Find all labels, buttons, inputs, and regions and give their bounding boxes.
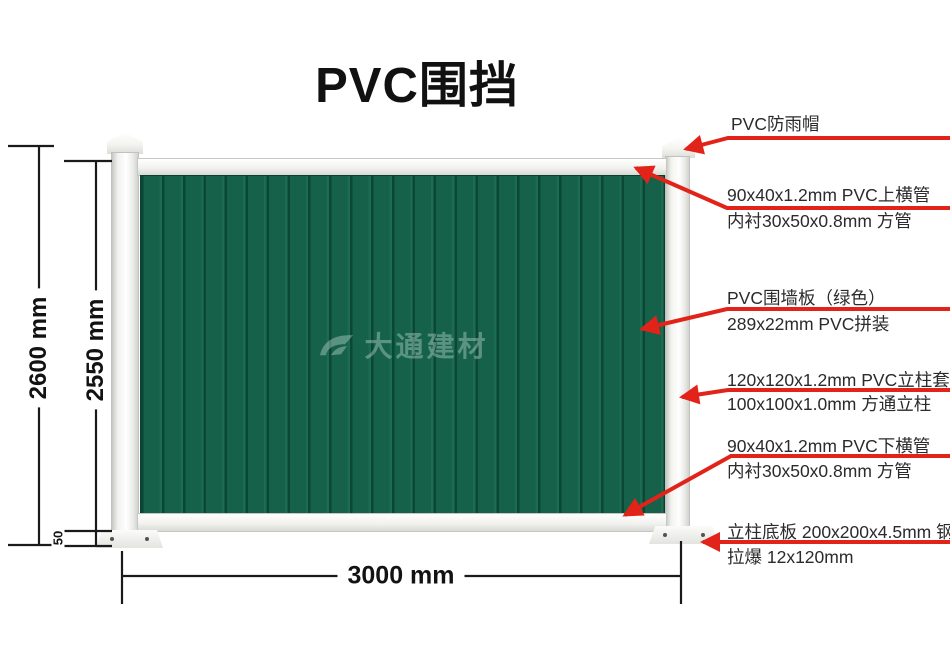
pvc-fence-diagram: PVC围挡 大通建材 <box>0 0 950 647</box>
annotation-bottom-rail-line2: 内衬30x50x0.8mm 方管 <box>727 460 912 482</box>
dim-panel-height: 2550 mm <box>84 291 108 410</box>
annotation-top-rail-line1: 90x40x1.2mm PVC上横管 <box>727 184 930 206</box>
annotation-post-line2: 100x100x1.0mm 方通立柱 <box>727 393 931 415</box>
annotation-bottom-rail-line1: 90x40x1.2mm PVC下横管 <box>727 435 930 457</box>
base-plate-left <box>96 530 163 548</box>
bolt-icon <box>663 533 667 537</box>
base-plate-right <box>649 526 719 544</box>
page-title: PVC围挡 <box>0 46 834 117</box>
post-right <box>665 156 690 543</box>
dim-total-height: 2600 mm <box>27 289 51 408</box>
watermark-text: 大通建材 <box>364 325 488 365</box>
green-wall-panel: 大通建材 <box>140 175 665 516</box>
bolt-icon <box>145 537 149 541</box>
annotation-wall-panel-line2: 289x22mm PVC拼装 <box>727 313 889 335</box>
annotation-wall-panel-line1: PVC围墙板（绿色） <box>727 287 885 309</box>
bottom-rail <box>137 513 667 532</box>
annotation-base-plate-line2: 拉爆 12x120mm <box>727 546 853 568</box>
post-left <box>111 152 139 548</box>
rain-cap-right-icon <box>662 137 695 158</box>
annotation-post-line1: 120x120x1.2mm PVC立柱套 <box>727 369 950 391</box>
bolt-icon <box>701 533 705 537</box>
bolt-icon <box>110 537 114 541</box>
dim-width: 3000 mm <box>337 564 464 589</box>
leader-rain-cap <box>686 138 950 149</box>
rain-cap-left-icon <box>107 132 143 154</box>
watermark: 大通建材 <box>316 325 488 365</box>
top-rail <box>137 158 667 176</box>
annotation-top-rail-line2: 内衬30x50x0.8mm 方管 <box>727 210 912 232</box>
dim-base-offset: 50 <box>52 529 65 547</box>
annotation-base-plate-line1: 立柱底板 200x200x4.5mm 钢板 <box>727 521 950 543</box>
annotation-rain-cap: PVC防雨帽 <box>731 113 819 135</box>
datong-logo-icon <box>316 331 356 359</box>
